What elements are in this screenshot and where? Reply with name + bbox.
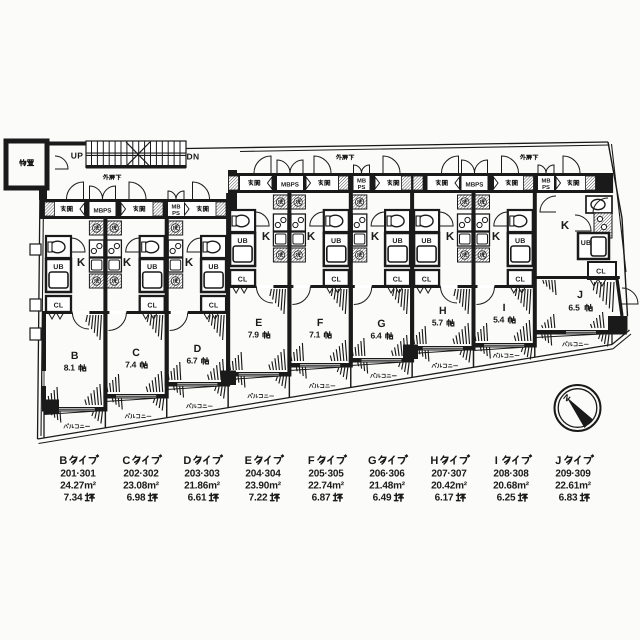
svg-text:UB: UB xyxy=(147,264,158,271)
svg-text:MB: MB xyxy=(541,179,550,185)
svg-text:MBPS: MBPS xyxy=(466,182,484,189)
svg-text:204·304: 204·304 xyxy=(245,469,281,480)
svg-text:21.48m²: 21.48m² xyxy=(369,481,406,492)
svg-text:UB: UB xyxy=(237,238,248,245)
svg-text:23.90m²: 23.90m² xyxy=(245,481,282,492)
svg-text:22.61m²: 22.61m² xyxy=(555,481,592,492)
svg-text:K: K xyxy=(262,231,271,243)
svg-text:B: B xyxy=(59,455,67,467)
svg-text:UB: UB xyxy=(208,264,219,271)
svg-text:6.25: 6.25 xyxy=(497,493,516,504)
svg-text:UB: UB xyxy=(421,238,432,245)
svg-text:K: K xyxy=(371,231,380,243)
svg-text:6.17: 6.17 xyxy=(435,493,454,504)
svg-text:CL: CL xyxy=(515,277,525,284)
svg-text:5.4: 5.4 xyxy=(493,315,504,325)
svg-text:C: C xyxy=(122,455,130,467)
svg-text:CL: CL xyxy=(209,303,219,310)
svg-text:5.7: 5.7 xyxy=(432,318,443,328)
svg-text:202·302: 202·302 xyxy=(123,469,159,480)
svg-text:203·303: 203·303 xyxy=(184,469,220,480)
svg-text:H: H xyxy=(439,305,447,317)
svg-text:G: G xyxy=(377,318,385,330)
svg-text:I: I xyxy=(495,455,498,467)
svg-text:6.49: 6.49 xyxy=(373,493,392,504)
svg-text:K: K xyxy=(492,231,501,243)
svg-text:C: C xyxy=(132,347,140,359)
svg-text:G: G xyxy=(368,455,377,467)
svg-text:K: K xyxy=(185,257,194,269)
svg-text:6.98: 6.98 xyxy=(127,493,146,504)
svg-text:UB: UB xyxy=(581,240,592,247)
svg-text:6.83: 6.83 xyxy=(559,493,578,504)
svg-text:CL: CL xyxy=(331,277,341,284)
svg-text:21.86m²: 21.86m² xyxy=(184,481,221,492)
svg-text:7.22: 7.22 xyxy=(249,493,268,504)
svg-text:UB: UB xyxy=(392,238,403,245)
svg-text:207·307: 207·307 xyxy=(431,469,467,480)
svg-text:6.7: 6.7 xyxy=(186,356,197,366)
svg-text:209·309: 209·309 xyxy=(555,469,591,480)
svg-text:205·305: 205·305 xyxy=(308,469,344,480)
svg-text:CL: CL xyxy=(422,277,432,284)
svg-text:K: K xyxy=(77,257,86,269)
svg-text:7.1: 7.1 xyxy=(309,330,320,340)
svg-text:F: F xyxy=(308,455,315,467)
svg-text:E: E xyxy=(255,317,262,329)
svg-text:CL: CL xyxy=(238,277,248,284)
svg-text:B: B xyxy=(71,350,79,362)
svg-text:7.34: 7.34 xyxy=(64,493,83,504)
svg-text:J: J xyxy=(577,289,583,301)
svg-text:J: J xyxy=(555,455,561,467)
svg-text:20.68m²: 20.68m² xyxy=(493,481,530,492)
svg-text:UP: UP xyxy=(71,151,83,161)
svg-text:22.74m²: 22.74m² xyxy=(308,481,345,492)
svg-text:MB: MB xyxy=(171,205,180,211)
svg-text:K: K xyxy=(446,231,455,243)
svg-text:6.87: 6.87 xyxy=(312,493,331,504)
svg-text:PS: PS xyxy=(172,210,180,217)
svg-text:CL: CL xyxy=(54,303,64,310)
svg-text:20.42m²: 20.42m² xyxy=(431,481,468,492)
svg-text:8.1: 8.1 xyxy=(64,363,75,373)
svg-text:CL: CL xyxy=(393,277,403,284)
svg-text:CL: CL xyxy=(147,303,157,310)
svg-text:6.5: 6.5 xyxy=(568,303,580,313)
svg-text:UB: UB xyxy=(515,238,526,245)
svg-text:208·308: 208·308 xyxy=(493,469,529,480)
svg-text:7.4: 7.4 xyxy=(125,360,136,370)
svg-text:24.27m²: 24.27m² xyxy=(60,481,97,492)
svg-text:K: K xyxy=(307,231,316,243)
svg-text:K: K xyxy=(123,257,132,269)
svg-text:F: F xyxy=(317,317,324,329)
svg-text:6.61: 6.61 xyxy=(188,493,207,504)
svg-text:6.4: 6.4 xyxy=(371,331,382,341)
svg-text:CL: CL xyxy=(596,269,606,276)
svg-text:H: H xyxy=(430,455,438,467)
svg-text:MB: MB xyxy=(357,179,366,185)
svg-text:MBPS: MBPS xyxy=(94,208,112,215)
svg-text:I: I xyxy=(503,302,506,314)
svg-text:23.08m²: 23.08m² xyxy=(123,481,160,492)
svg-text:7.9: 7.9 xyxy=(248,330,259,340)
svg-text:UB: UB xyxy=(53,264,64,271)
svg-text:DN: DN xyxy=(187,152,200,162)
svg-text:K: K xyxy=(561,220,570,232)
svg-text:PS: PS xyxy=(358,184,366,191)
svg-text:PS: PS xyxy=(542,184,550,191)
svg-text:206·306: 206·306 xyxy=(369,469,405,480)
svg-text:UB: UB xyxy=(331,238,342,245)
svg-text:E: E xyxy=(245,455,252,467)
svg-text:201·301: 201·301 xyxy=(60,469,96,480)
svg-text:D: D xyxy=(183,455,191,467)
svg-text:D: D xyxy=(194,343,202,355)
svg-text:MBPS: MBPS xyxy=(281,182,299,189)
